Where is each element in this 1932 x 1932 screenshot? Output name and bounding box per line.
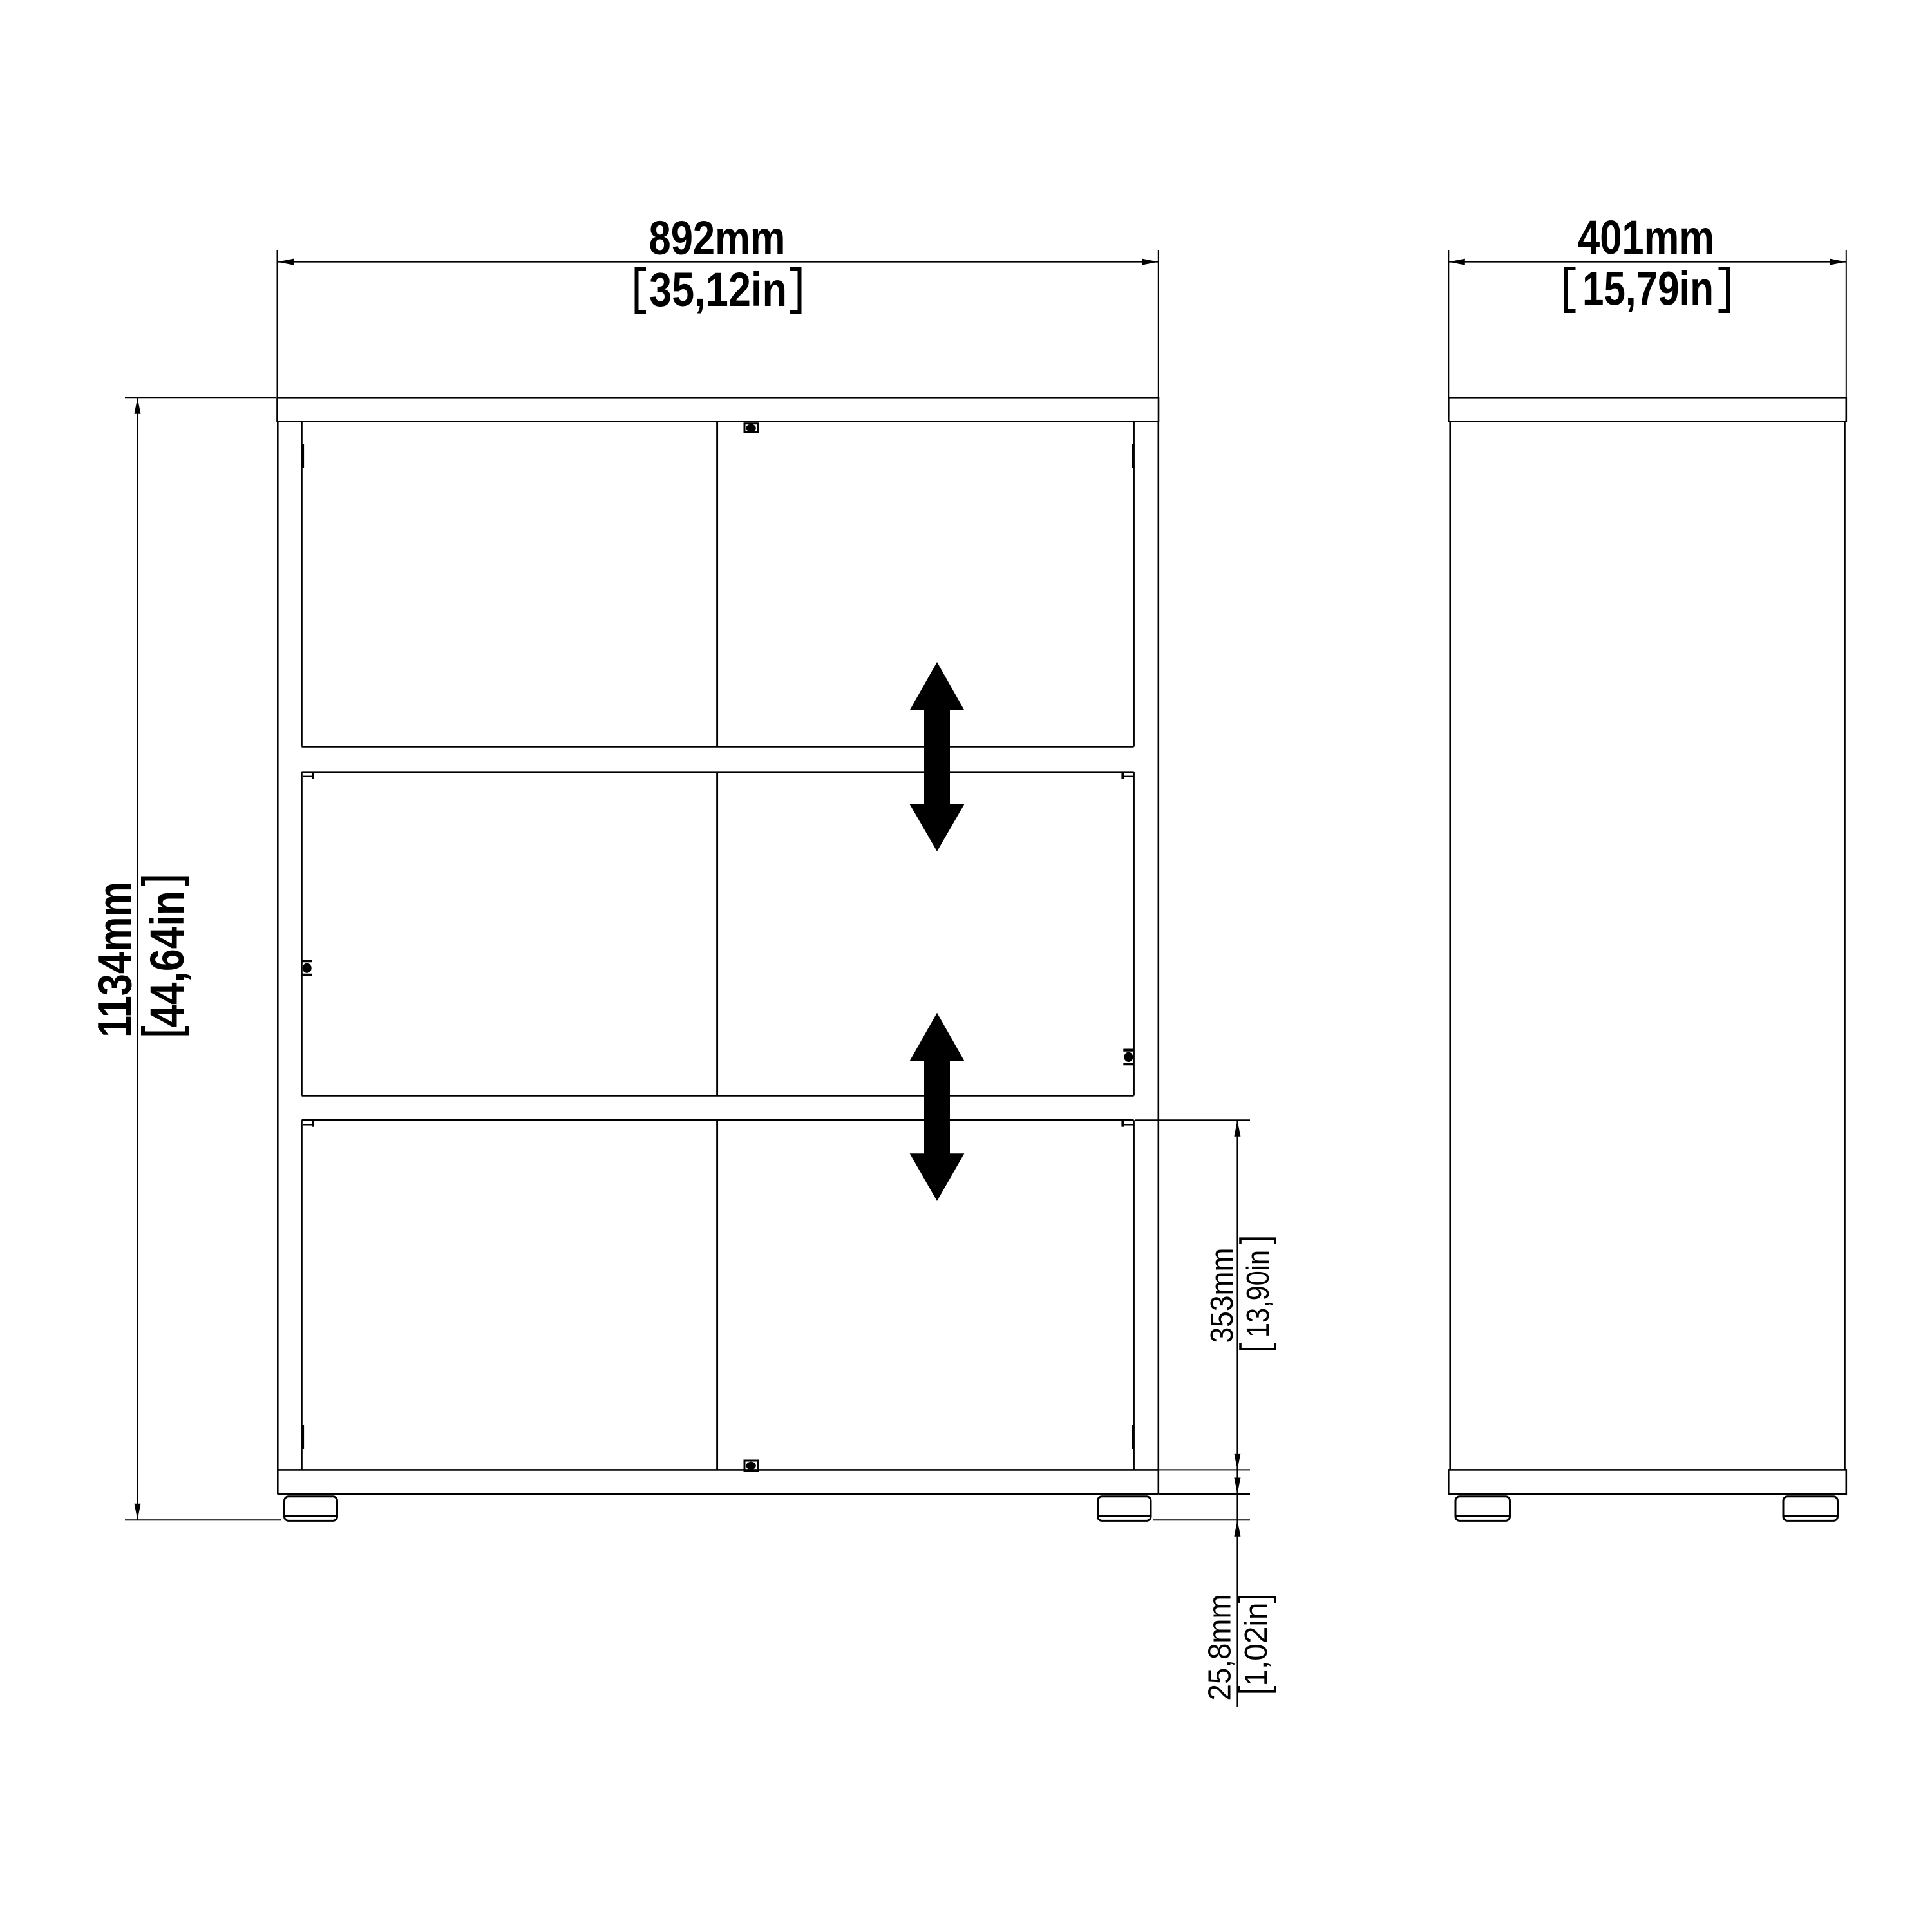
svg-text:892mm: 892mm [649,211,786,265]
svg-text:44,64in: 44,64in [140,891,194,1027]
svg-text:353mm: 353mm [1205,1248,1240,1343]
svg-text:1134mm: 1134mm [88,882,142,1037]
svg-text:13,90in: 13,90in [1241,1250,1276,1338]
svg-text:25,8mm: 25,8mm [1203,1595,1238,1701]
svg-text:15,79in: 15,79in [1582,262,1714,316]
svg-text:401mm: 401mm [1578,211,1714,264]
svg-text:35,12in: 35,12in [649,263,787,316]
svg-text:1,02in: 1,02in [1239,1603,1274,1687]
